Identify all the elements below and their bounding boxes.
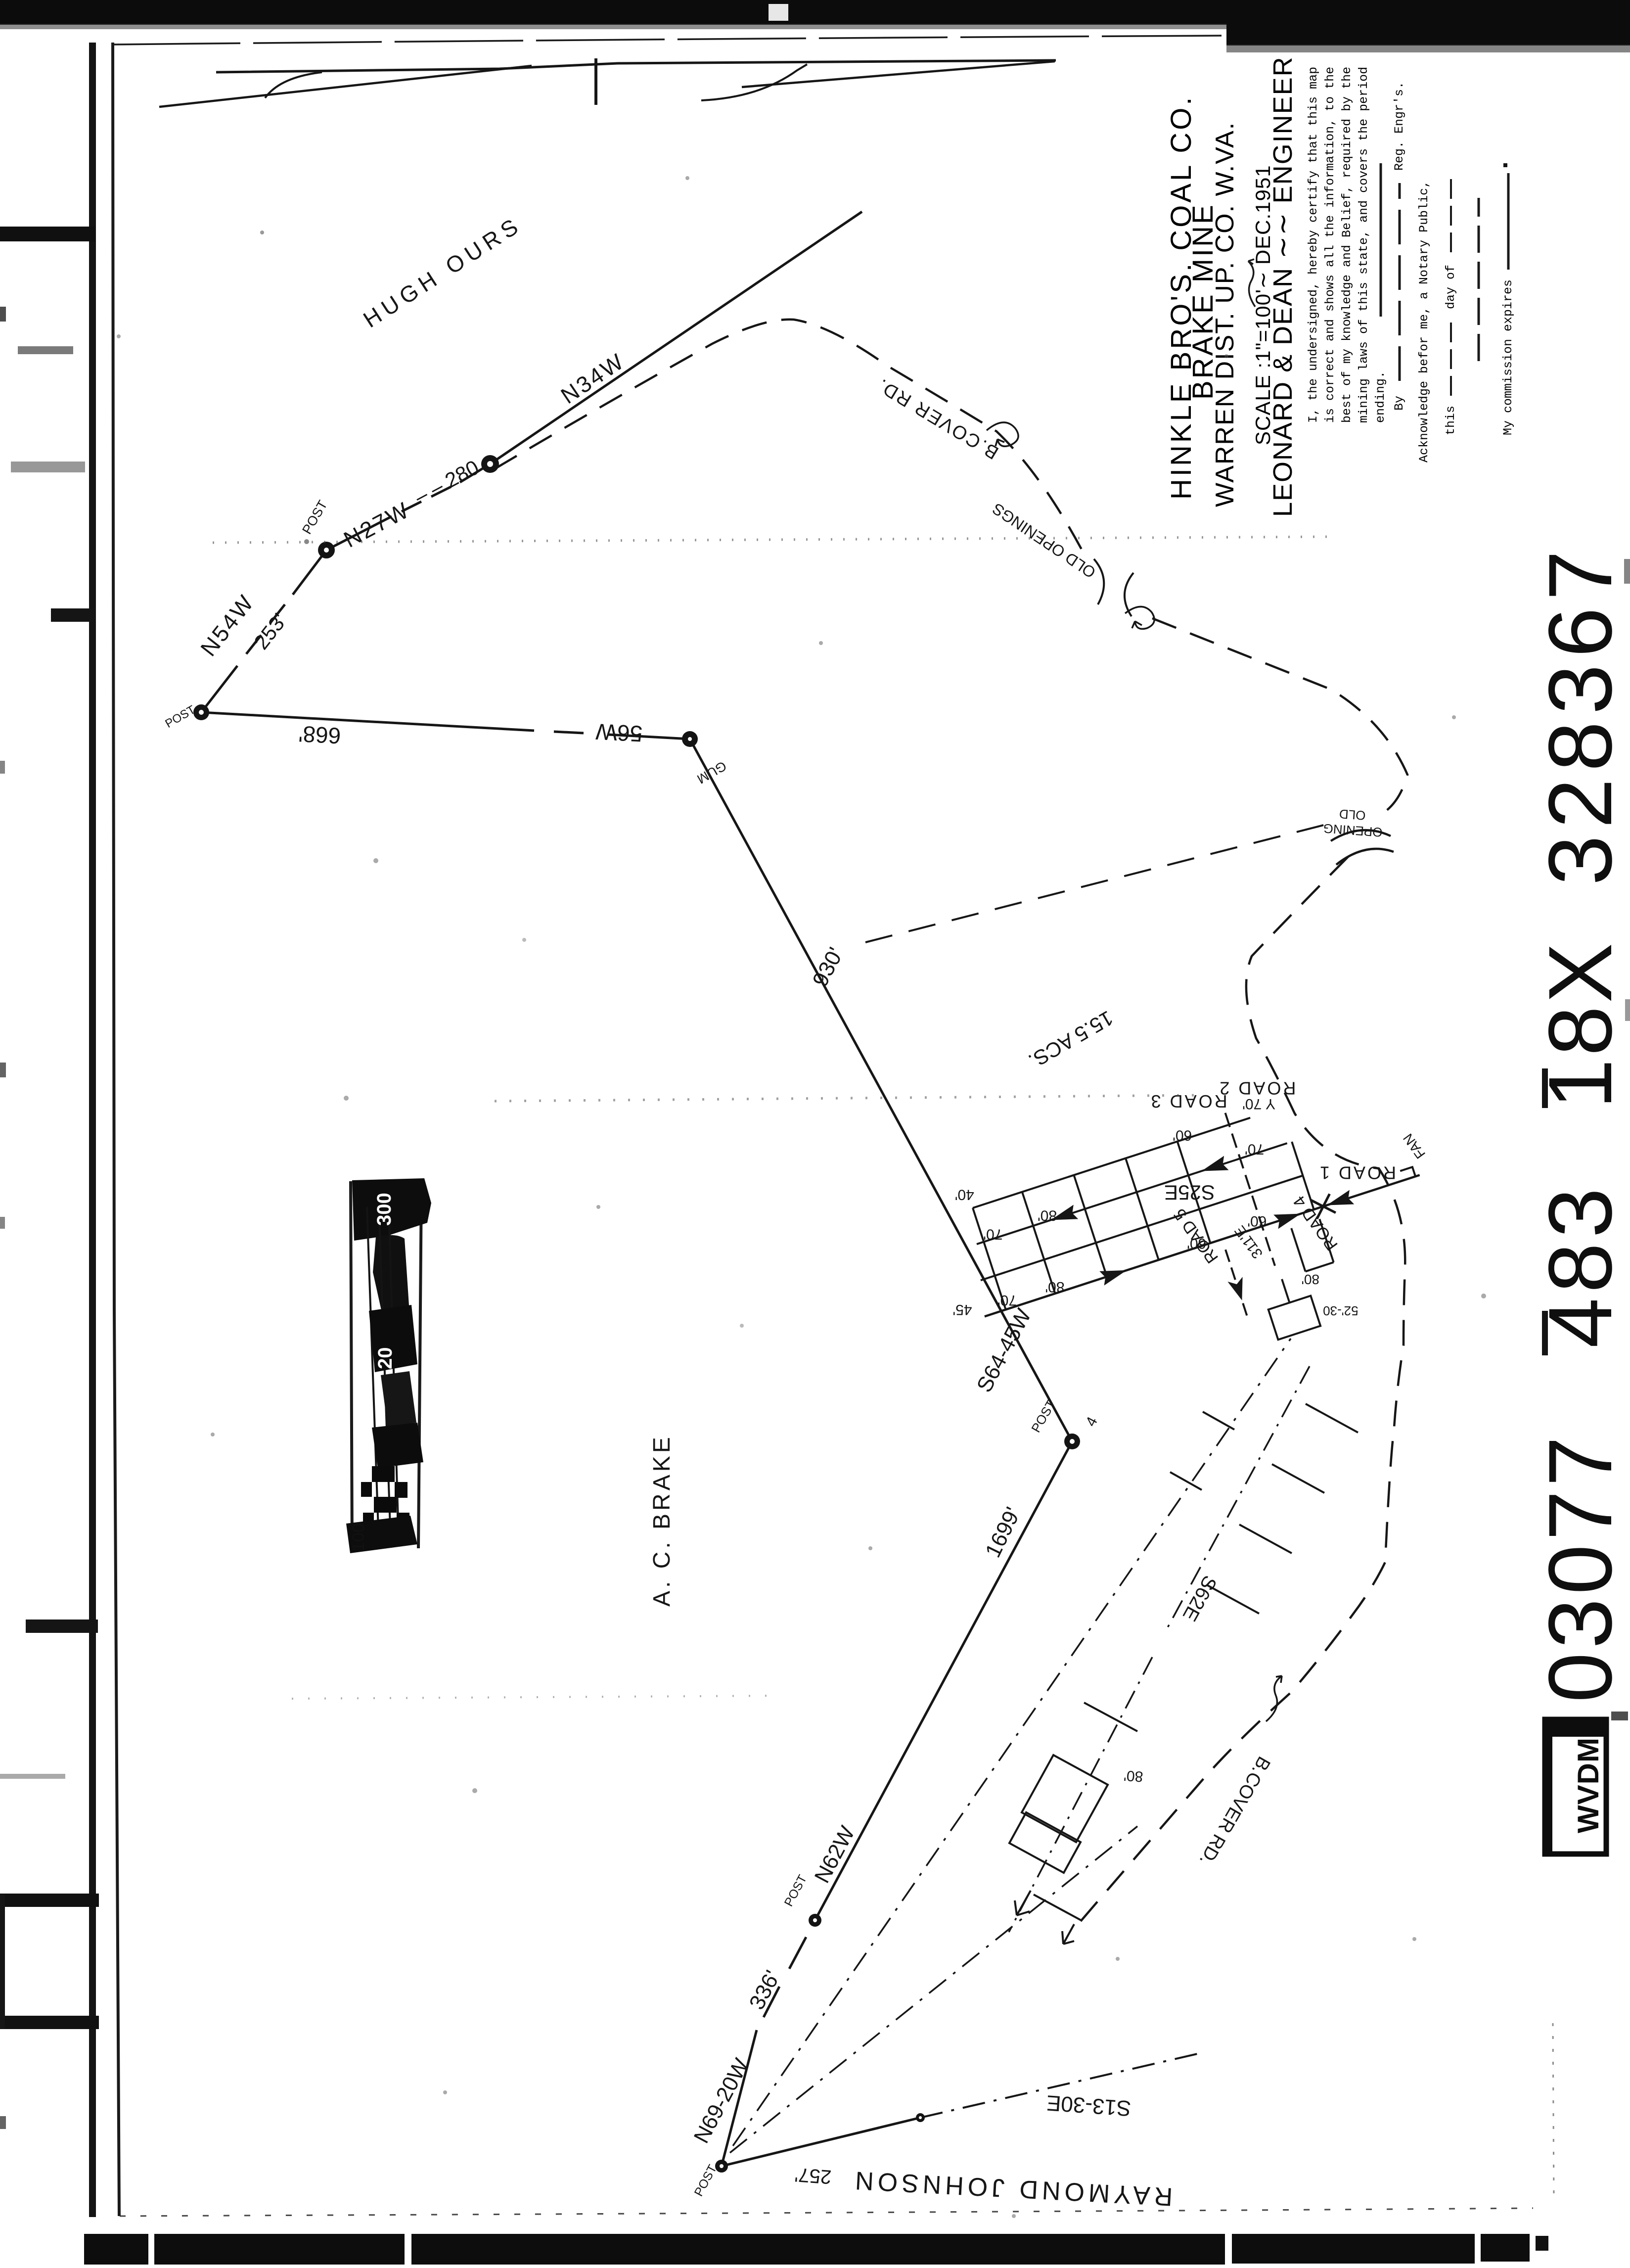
- svg-text:S25E: S25E: [1164, 1181, 1215, 1204]
- svg-text:ROAD 2: ROAD 2: [1218, 1078, 1296, 1099]
- svg-text:WARREN DIST. UP. CO. W.VA.: WARREN DIST. UP. CO. W.VA.: [1211, 122, 1239, 507]
- svg-text:257': 257': [794, 2164, 832, 2188]
- svg-text:ending.: ending.: [1373, 371, 1388, 423]
- svg-text:328367: 328367: [1530, 544, 1630, 885]
- svg-text:ROAD 3: ROAD 3: [1149, 1091, 1227, 1111]
- svg-text:I, the undersigned, hereby cer: I, the undersigned, hereby certify that …: [1306, 67, 1320, 423]
- svg-text:A. C. BRAKE: A. C. BRAKE: [649, 1434, 675, 1607]
- svg-text:300: 300: [373, 1193, 395, 1226]
- svg-text:03077: 03077: [1530, 1433, 1630, 1703]
- svg-text:LEONARD & DEAN ∼∼ ENGINEER: LEONARD & DEAN ∼∼ ENGINEER: [1268, 56, 1298, 517]
- svg-text:OLD: OLD: [1339, 806, 1366, 823]
- svg-text:45': 45': [952, 1301, 972, 1318]
- svg-text:10: 10: [355, 1451, 374, 1470]
- svg-text:WVDM: WVDM: [1572, 1737, 1605, 1833]
- svg-text:best of my knowledge and Belie: best of my knowledge and Belief, require…: [1340, 67, 1354, 423]
- svg-text:668': 668': [298, 721, 341, 749]
- svg-text:this: this: [1444, 406, 1458, 435]
- svg-text:100: 100: [349, 1523, 368, 1551]
- svg-text:Reg. Engr's.: Reg. Engr's.: [1392, 82, 1406, 171]
- svg-text:ROAD 1: ROAD 1: [1318, 1162, 1396, 1183]
- svg-text:Acknowledge befor me, a Notary: Acknowledge befor me, a Notary Public,: [1417, 181, 1431, 463]
- svg-text:mining laws of this state, and: mining laws of this state, and covers th…: [1357, 67, 1371, 423]
- svg-text:80': 80': [1045, 1279, 1064, 1295]
- svg-text:60': 60': [1173, 1127, 1192, 1143]
- svg-text:52'-30: 52'-30: [1323, 1303, 1358, 1318]
- svg-text:40': 40': [955, 1186, 974, 1203]
- svg-text:day of: day of: [1444, 265, 1458, 309]
- svg-text:56W: 56W: [595, 719, 643, 747]
- svg-text:By: By: [1392, 396, 1406, 411]
- svg-text:70': 70': [983, 1226, 1002, 1242]
- svg-text:80': 80': [1123, 1767, 1143, 1785]
- svg-text:70': 70': [1245, 1141, 1264, 1157]
- svg-text:70': 70': [997, 1292, 1017, 1308]
- svg-text:My commission expires: My commission expires: [1501, 279, 1515, 435]
- svg-text:is correct and shows all the i: is correct and shows all the information…: [1323, 67, 1337, 423]
- svg-text:60': 60': [1247, 1213, 1267, 1229]
- svg-text:80': 80': [1038, 1207, 1057, 1224]
- svg-text:80': 80': [1302, 1272, 1320, 1287]
- svg-text:20: 20: [374, 1347, 396, 1370]
